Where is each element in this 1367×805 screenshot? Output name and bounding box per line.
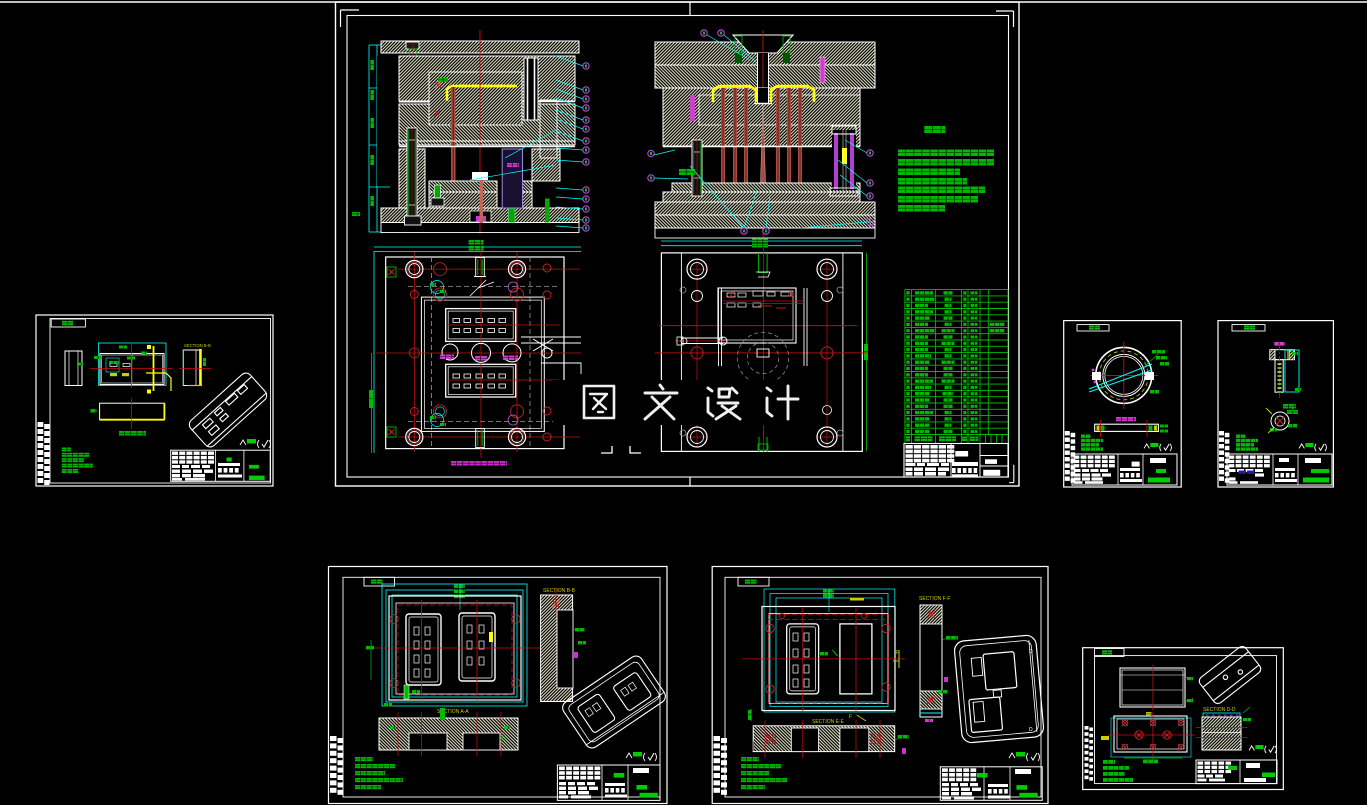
svg-text:SECTION D-D: SECTION D-D: [1203, 707, 1236, 713]
svg-text:D: D: [1029, 649, 1033, 655]
svg-text:F: F: [896, 650, 899, 656]
svg-text:SECTION B-B: SECTION B-B: [184, 343, 211, 348]
svg-text:SECTION B-B: SECTION B-B: [543, 588, 576, 594]
svg-text:SECTION F-F: SECTION F-F: [919, 596, 950, 602]
svg-text:SECTION E-E: SECTION E-E: [812, 719, 845, 725]
svg-text:D: D: [1029, 727, 1033, 733]
svg-text:F: F: [849, 714, 852, 720]
